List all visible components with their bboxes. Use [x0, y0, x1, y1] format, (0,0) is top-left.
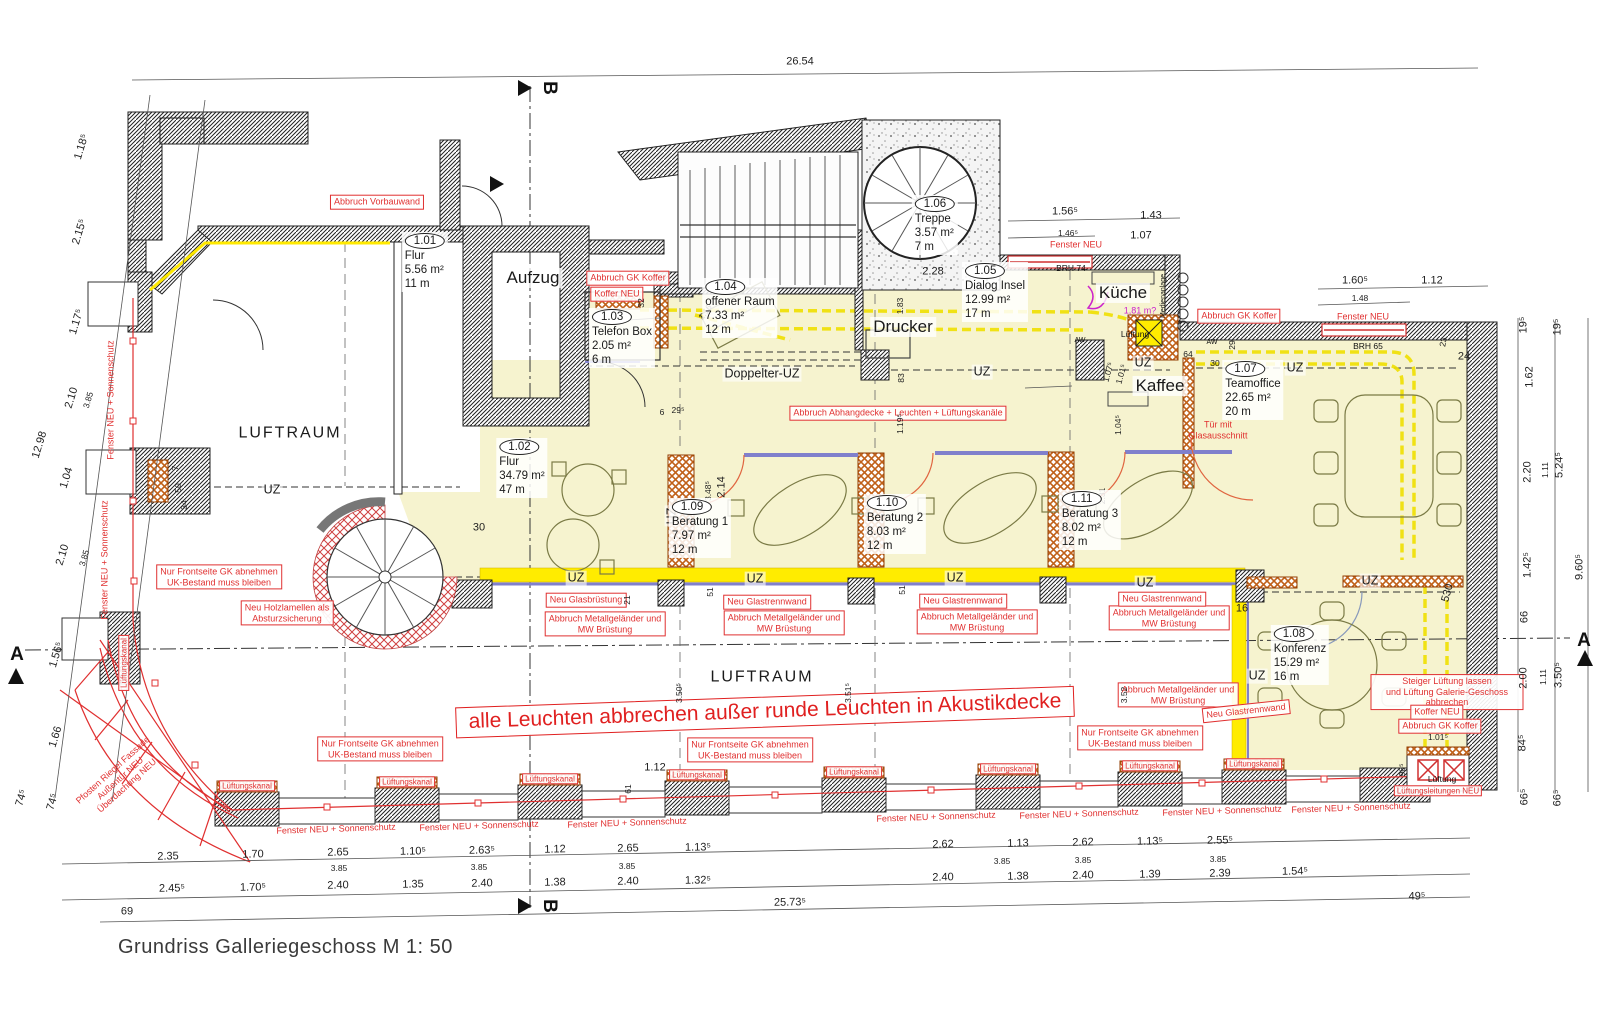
annotation: 1.18⁵	[72, 133, 92, 162]
annotation: 66⁵	[1519, 789, 1532, 806]
label-luftraum-upper: LUFTRAUM	[238, 425, 341, 444]
label-kueche: Küche	[1096, 283, 1150, 303]
annotation: 530	[1439, 582, 1456, 603]
annotation: 25.73⁵	[774, 896, 806, 910]
room-number: 1.02	[499, 439, 539, 455]
annotation: Neu Glasbrüstung	[546, 593, 627, 608]
annotation: 2.20	[1522, 461, 1535, 482]
annotation: Lüftungsleitungen NEU	[1394, 785, 1482, 796]
annotation: UZ	[1360, 574, 1381, 589]
room-label-1-04: 1.04offener Raum7.33 m²12 m	[702, 278, 777, 338]
annotation: UZ	[1135, 576, 1156, 591]
annotation: 1.12	[544, 843, 566, 856]
annotation: Fenster NEU + Sonnenschutz	[1291, 801, 1411, 816]
annotation: 1.04⁵	[1113, 415, 1123, 435]
room-info: offener Raum	[705, 295, 774, 309]
room-label-1-05: 1.05Dialog Insel12.99 m²17 m	[962, 262, 1028, 322]
room-number: 1.04	[705, 279, 745, 295]
annotation: 51	[705, 587, 715, 596]
annotation: 1.70⁵	[240, 881, 266, 894]
annotation: 51	[897, 585, 907, 594]
room-info: 7.97 m²	[672, 529, 728, 543]
annotation: 1.32⁵	[685, 874, 711, 887]
annotation: 2.55⁵	[1207, 834, 1233, 847]
annotation: 1.10⁵	[400, 845, 426, 858]
annotation: 3.85	[331, 863, 348, 873]
annotation: UZ	[972, 365, 993, 380]
annotation: 1.17⁵	[67, 308, 87, 337]
annotation: 29	[1227, 340, 1237, 349]
annotation: 21	[622, 595, 632, 604]
annotation: Lüftungskanal	[980, 763, 1036, 774]
room-label-1-03: 1.03Telefon Box2.05 m²6 m	[589, 308, 655, 368]
room-info: 20 m	[1225, 405, 1280, 419]
annotation: 1.39	[1139, 868, 1161, 881]
annotation: 3.52	[1119, 687, 1129, 704]
annotation: Lüftungskanal	[379, 776, 435, 787]
annotation: 16	[1236, 603, 1248, 616]
annotation: Abbruch GK Koffer	[586, 271, 669, 286]
room-info: Beratung 1	[672, 515, 728, 529]
annotation: Fenster NEU	[1050, 240, 1102, 251]
room-info: 7.33 m²	[705, 309, 774, 323]
annotation: 30	[473, 522, 485, 535]
annotation: 66⁵	[1552, 790, 1565, 807]
room-info: Teamoffice	[1225, 377, 1280, 391]
room-number: 1.05	[965, 263, 1005, 279]
annotation: 19⁵	[1552, 319, 1565, 336]
annotation: 3.50⁵	[1553, 662, 1566, 688]
room-info: 2.05 m²	[592, 339, 652, 353]
room-info: 7 m	[915, 240, 955, 254]
room-label-1-02: 1.02Flur34.79 m²47 m	[496, 438, 547, 498]
annotation: Medienanlage	[1160, 274, 1168, 318]
room-number: 1.10	[867, 495, 907, 511]
annotation: 2.10	[54, 543, 73, 567]
annotation: UZ	[566, 571, 587, 586]
annotation: Lüftung	[1428, 774, 1456, 784]
room-info: 12.99 m²	[965, 293, 1025, 307]
annotation: 2.10	[63, 386, 82, 410]
annotation: 66	[1519, 611, 1532, 623]
drawing-title: Grundriss Galleriegeschoss M 1: 50	[118, 936, 453, 959]
annotation: 1.07	[1130, 230, 1151, 243]
room-number: 1.03	[592, 309, 632, 325]
annotation: 2.35	[157, 850, 179, 863]
annotation: 1.42⁵	[1522, 552, 1535, 578]
annotation: 29⁵	[672, 405, 685, 415]
room-info: 15.29 m²	[1274, 656, 1326, 670]
annotation: 74⁵	[13, 788, 30, 808]
annotation: 1.66	[47, 725, 66, 749]
annotation: Lüftungskanal	[1122, 760, 1178, 771]
annotation: Abbruch Metallgeländer und MW Brüstung	[545, 611, 666, 636]
room-label-1-11: 1.11Beratung 38.02 m²12 m	[1059, 490, 1121, 550]
annotation: 2.40	[327, 879, 349, 892]
annotation: 1.54⁵	[1282, 865, 1308, 878]
label-drucker: Drucker	[870, 317, 936, 337]
annotation: Abbruch Metallgeländer und MW Brüstung	[724, 610, 845, 635]
annotation: Nur Frontseite GK abnehmen UK-Bestand mu…	[687, 737, 813, 762]
annotation: Abbruch Metallgeländer und MW Brüstung	[917, 609, 1038, 634]
annotation: 2.40	[471, 877, 493, 890]
annotation: 84⁵	[1517, 735, 1530, 752]
annotation: 1.83	[895, 298, 905, 315]
annotation: 61	[623, 784, 633, 793]
annotation: 96⁵	[1397, 764, 1407, 777]
annotation: Abbruch Metallgeländer und MW Brüstung	[1109, 605, 1230, 630]
annotation: Fenster NEU + Sonnenschutz	[1019, 807, 1139, 822]
annotation: 49⁵	[1408, 890, 1425, 903]
annotation: UZ	[745, 572, 766, 587]
annotation: 1.48	[1352, 293, 1369, 303]
room-info: Beratung 3	[1062, 507, 1118, 521]
annotation: 1.12	[1421, 275, 1442, 288]
annotation: 2.63⁵	[469, 844, 495, 857]
annotation: 1.46⁵	[1058, 228, 1078, 238]
room-info: 3.57 m²	[915, 226, 955, 240]
annotation: 23	[1437, 336, 1449, 347]
annotation: Nur Frontseite GK abnehmen UK-Bestand mu…	[317, 736, 443, 761]
room-info: Dialog Insel	[965, 279, 1025, 293]
annotation: Lüftungskanal	[826, 766, 882, 777]
room-info: 12 m	[867, 539, 923, 553]
annotation: 7	[170, 466, 180, 471]
annotation: Fenster NEU	[1337, 312, 1389, 323]
annotation: 1.13⁵	[1137, 835, 1163, 848]
annotation: 2.65	[617, 842, 639, 855]
annotation: Koffer NEU	[1410, 705, 1463, 720]
annotation: UZ	[1133, 356, 1154, 371]
room-info: Telefon Box	[592, 325, 652, 339]
room-info: Beratung 2	[867, 511, 923, 525]
room-info: 5.56 m²	[405, 263, 445, 277]
annotation: 2.62	[932, 838, 954, 851]
annotation: Fenster NEU + Sonnenschutz	[419, 819, 539, 834]
label-aufzug: Aufzug	[504, 268, 563, 288]
room-number: 1.06	[915, 196, 955, 212]
annotation: Neu Holzlamellen als Absturzsicherung	[241, 600, 334, 625]
annotation: 3.85	[77, 549, 91, 568]
room-info: 12 m	[672, 543, 728, 557]
annotation: 32	[636, 298, 646, 307]
annotation: 2.28	[922, 266, 943, 279]
annotation: AW	[1074, 337, 1085, 345]
annotation: 1.56⁵	[47, 641, 67, 670]
annotation: 3.85	[1210, 854, 1227, 864]
room-label-1-10: 1.10Beratung 28.03 m²12 m	[864, 494, 926, 554]
room-number: 1.09	[672, 499, 712, 515]
annotation: UZ	[1285, 361, 1306, 376]
annotation: Lüftungskanal	[669, 769, 725, 780]
room-info: 8.02 m²	[1062, 521, 1118, 535]
annotation: 2.40	[617, 875, 639, 888]
annotation: 2.62	[1072, 836, 1094, 849]
annotation: 1.01⁵	[1428, 732, 1448, 742]
annotation: Tür mit Glasausschnitt	[1188, 419, 1247, 440]
annotation: 1.13⁵	[685, 841, 711, 854]
room-info: 17 m	[965, 307, 1025, 321]
annotation: 69	[121, 906, 133, 919]
annotation: 2.45⁵	[159, 882, 185, 895]
annotation: UZ	[262, 483, 283, 498]
annotation: 1.43	[1140, 210, 1161, 223]
annotation: 3.85	[619, 861, 636, 871]
annotation: AW	[1206, 339, 1217, 347]
annotation: Lüftungskanal	[118, 635, 129, 691]
room-info: 47 m	[499, 483, 544, 497]
floor-plan-page: AufzugDruckerKücheKaffeeLUFTRAUMLUFTRAUM…	[0, 0, 1600, 1012]
annotation: 1.12	[644, 762, 665, 775]
annotation: 1.11	[1540, 462, 1550, 478]
room-number: 1.11	[1062, 491, 1102, 507]
section-marker-a-right: A	[1577, 630, 1591, 652]
annotation: Neu Glastrennwand	[1118, 592, 1206, 607]
annotation: Neu Glastrennwand	[919, 594, 1007, 609]
annotation: 3.50⁵	[674, 683, 684, 703]
annotation: Fenster NEU + Sonnenschutz	[567, 816, 687, 831]
annotation: 34	[179, 500, 189, 509]
annotation: 26.54	[786, 56, 814, 69]
annotation: 3.51⁵	[843, 683, 853, 703]
annotation: 3.85	[81, 391, 95, 410]
annotation: UZ	[945, 571, 966, 586]
annotation: 5.24⁵	[1554, 452, 1567, 478]
room-number: 1.08	[1274, 626, 1314, 642]
label-kaffee: Kaffee	[1133, 376, 1188, 396]
banner-note: alle Leuchten abbrechen außer runde Leuc…	[455, 686, 1075, 738]
annotation: 3.85	[471, 862, 488, 872]
annotation: 1,81 m?	[1124, 306, 1157, 317]
annotation: Abbruch Vorbauwand	[330, 195, 424, 210]
annotation: 1.01⁵	[1114, 363, 1129, 385]
room-info: 8.03 m²	[867, 525, 923, 539]
annotation: Fenster NEU + Sonnenschutz	[1162, 804, 1282, 819]
annotation: 1.70	[242, 848, 264, 861]
room-info: Flur	[499, 455, 544, 469]
room-info: 12 m	[705, 323, 774, 337]
annotation: Nur Frontseite GK abnehmen UK-Bestand mu…	[1077, 725, 1203, 750]
annotation: UZ	[1247, 669, 1268, 684]
annotation: BRH 65	[1353, 341, 1383, 351]
annotation: Lüftungskanal	[1226, 758, 1282, 769]
annotation: Fenster NEU + Sonnenschutz	[276, 822, 396, 837]
annotation-layer: AufzugDruckerKücheKaffeeLUFTRAUMLUFTRAUM…	[0, 0, 1600, 1012]
annotation: 50	[173, 483, 183, 492]
annotation: 1.56⁵	[1052, 206, 1078, 219]
annotation: 6	[660, 407, 665, 417]
section-marker-a-left: A	[10, 644, 24, 666]
room-info: 16 m	[1274, 670, 1326, 684]
room-number: 1.01	[405, 233, 445, 249]
annotation: 9.60⁵	[1574, 554, 1587, 580]
annotation: 2.39	[1209, 867, 1231, 880]
room-label-1-06: 1.06Treppe3.57 m²7 m	[912, 195, 958, 255]
annotation: 30	[1210, 358, 1219, 368]
annotation: Abbruch Metallgeländer und MW Brüstung	[1118, 682, 1239, 707]
room-info: 11 m	[405, 277, 445, 291]
annotation: Lüftungskanal	[522, 773, 578, 784]
annotation: 64	[1183, 349, 1192, 359]
room-info: 12 m	[1062, 535, 1118, 549]
annotation: 1.35	[402, 878, 424, 891]
annotation: Nur Frontseite GK abnehmen UK-Bestand mu…	[156, 564, 282, 589]
annotation: 1.38	[544, 876, 566, 889]
annotation: Abbruch GK Koffer	[1197, 309, 1280, 324]
annotation: 12.98	[30, 430, 50, 460]
annotation: Fenster NEU + Sonnenschutz	[106, 340, 117, 459]
room-info: Flur	[405, 249, 445, 263]
annotation: Fenster NEU + Sonnenschutz	[876, 810, 996, 825]
annotation: Fenster NEU + Sonnenschutz	[100, 500, 111, 619]
room-info: 6 m	[592, 353, 652, 367]
room-label-1-07: 1.07Teamoffice22.65 m²20 m	[1222, 360, 1283, 420]
annotation: 83	[896, 373, 906, 382]
annotation: 1.11	[1538, 669, 1548, 685]
annotation: 1.04	[58, 466, 77, 490]
annotation: 2.15⁵	[70, 218, 90, 247]
room-label-1-01: 1.01Flur5.56 m²11 m	[402, 232, 448, 292]
annotation: 1.60⁵	[1342, 275, 1368, 288]
room-info: Treppe	[915, 212, 955, 226]
annotation: 1.38	[1007, 870, 1029, 883]
room-info: Konferenz	[1274, 642, 1326, 656]
annotation: 24	[1458, 351, 1470, 364]
annotation: 3.85	[994, 856, 1011, 866]
room-number: 1.07	[1225, 361, 1265, 377]
annotation: 2.00	[1518, 667, 1531, 688]
annotation: 3.85	[1075, 855, 1092, 865]
annotation: 2.40	[1072, 869, 1094, 882]
annotation: 1.19⁵	[895, 414, 905, 434]
label-doppelter-uz: Doppelter-UZ	[722, 367, 801, 382]
annotation: BRH 74	[1056, 263, 1086, 273]
section-marker-b-top: B	[538, 81, 560, 95]
annotation: 74⁵	[44, 792, 61, 812]
annotation: 2.14	[716, 476, 729, 497]
annotation: Lüftung	[1121, 329, 1149, 339]
room-label-1-08: 1.08Konferenz15.29 m²16 m	[1271, 625, 1329, 685]
annotation: Pfosten Riegel Fassade Außentür NEU Über…	[74, 734, 166, 822]
annotation: 1.13	[1007, 837, 1029, 850]
room-info: 34.79 m²	[499, 469, 544, 483]
label-luftraum-lower: LUFTRAUM	[710, 669, 813, 688]
annotation: 19⁵	[1518, 317, 1531, 334]
annotation: Lüftungskanal	[219, 780, 275, 791]
annotation: 2.40	[932, 871, 954, 884]
room-label-1-09: 1.09Beratung 17.97 m²12 m	[669, 498, 731, 558]
room-info: 22.65 m²	[1225, 391, 1280, 405]
annotation: Neu Glastrennwand	[723, 595, 811, 610]
annotation: 1.62	[1524, 366, 1537, 387]
section-marker-b-bottom: B	[538, 899, 560, 913]
annotation: 2.65	[327, 846, 349, 859]
